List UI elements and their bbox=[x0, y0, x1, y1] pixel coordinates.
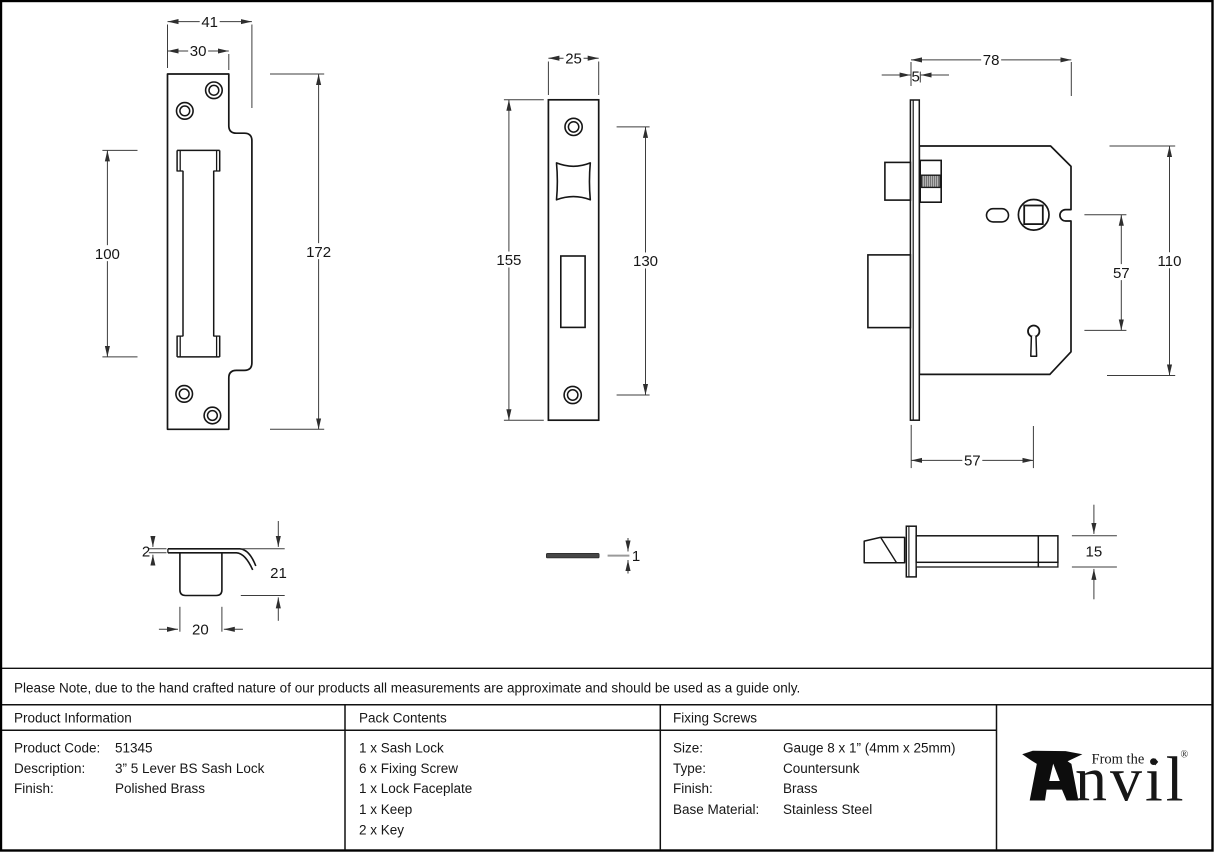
svg-text:Finish:: Finish: bbox=[673, 781, 713, 796]
svg-text:1: 1 bbox=[632, 548, 640, 565]
svg-text:Base Material:: Base Material: bbox=[673, 802, 759, 817]
svg-text:Size:: Size: bbox=[673, 741, 703, 756]
svg-text:57: 57 bbox=[1113, 265, 1130, 282]
svg-text:Please Note, due to the hand c: Please Note, due to the hand crafted nat… bbox=[14, 681, 800, 696]
svg-text:41: 41 bbox=[201, 14, 218, 31]
svg-text:2 x Key: 2 x Key bbox=[359, 823, 404, 838]
svg-text:Product Information: Product Information bbox=[14, 711, 132, 726]
svg-text:Product Code:: Product Code: bbox=[14, 741, 100, 756]
svg-text:Countersunk: Countersunk bbox=[783, 761, 860, 776]
svg-text:Gauge 8 x 1” (4mm x 25mm): Gauge 8 x 1” (4mm x 25mm) bbox=[783, 741, 956, 756]
svg-text:Description:: Description: bbox=[14, 761, 85, 776]
svg-text:110: 110 bbox=[1158, 253, 1182, 270]
svg-text:155: 155 bbox=[496, 252, 521, 269]
svg-text:172: 172 bbox=[306, 244, 331, 261]
svg-text:Finish:: Finish: bbox=[14, 781, 54, 796]
svg-text:1 x Lock Faceplate: 1 x Lock Faceplate bbox=[359, 781, 472, 796]
svg-text:Stainless Steel: Stainless Steel bbox=[783, 802, 872, 817]
svg-text:5: 5 bbox=[912, 68, 920, 85]
svg-text:3” 5 Lever BS Sash Lock: 3” 5 Lever BS Sash Lock bbox=[115, 761, 265, 776]
svg-text:78: 78 bbox=[983, 52, 1000, 69]
svg-text:nvil: nvil bbox=[1075, 744, 1187, 815]
svg-text:1 x Keep: 1 x Keep bbox=[359, 802, 412, 817]
svg-text:100: 100 bbox=[95, 246, 120, 263]
svg-text:15: 15 bbox=[1086, 543, 1103, 560]
svg-text:Polished Brass: Polished Brass bbox=[115, 781, 205, 796]
svg-text:Brass: Brass bbox=[783, 781, 818, 796]
svg-text:30: 30 bbox=[190, 43, 207, 60]
svg-text:®: ® bbox=[1181, 750, 1189, 761]
svg-text:6 x Fixing Screw: 6 x Fixing Screw bbox=[359, 761, 458, 776]
svg-text:51345: 51345 bbox=[115, 741, 153, 756]
svg-text:Pack Contents: Pack Contents bbox=[359, 711, 447, 726]
svg-text:25: 25 bbox=[565, 50, 582, 67]
svg-text:Type:: Type: bbox=[673, 761, 706, 776]
svg-text:20: 20 bbox=[192, 621, 209, 638]
svg-text:57: 57 bbox=[964, 453, 981, 470]
svg-text:130: 130 bbox=[633, 253, 658, 270]
svg-text:Fixing Screws: Fixing Screws bbox=[673, 711, 757, 726]
svg-text:2: 2 bbox=[142, 543, 150, 560]
svg-text:1 x Sash Lock: 1 x Sash Lock bbox=[359, 741, 444, 756]
svg-text:21: 21 bbox=[270, 565, 287, 582]
